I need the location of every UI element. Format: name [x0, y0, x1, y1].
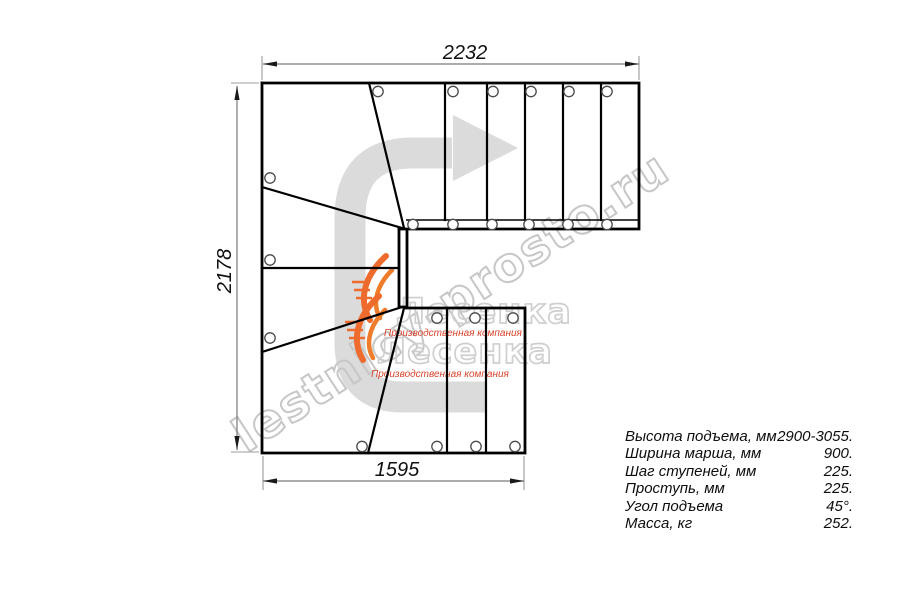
dimension-top-label: 2232: [442, 42, 488, 64]
logo-text: Лесенка: [396, 292, 572, 332]
spec-row: Масса, кг 252.: [625, 515, 853, 532]
spec-value: 252.: [824, 515, 853, 532]
spec-value: 2900-3055.: [777, 428, 853, 445]
spec-label: Проступь, мм: [625, 480, 725, 497]
spec-label: Масса, кг: [625, 515, 692, 532]
logo-text: Лесенка: [377, 332, 553, 372]
spec-row: Высота подъема, мм 2900-3055.: [625, 428, 853, 445]
spec-row: Угол подъема 45°.: [625, 498, 853, 515]
stair-drawing-page: lestnicy-prosto.ru Лесенка Производствен…: [0, 0, 900, 600]
spec-value: 225.: [824, 463, 853, 480]
spec-table: Высота подъема, мм 2900-3055. Ширина мар…: [625, 428, 853, 532]
spec-label: Угол подъема: [625, 498, 723, 515]
spec-row: Шаг ступеней, мм 225.: [625, 463, 853, 480]
spec-label: Высота подъема, мм: [625, 428, 777, 445]
spec-value: 225.: [824, 480, 853, 497]
dimension-bottom-label: 1595: [375, 459, 420, 481]
spec-row: Ширина марша, мм 900.: [625, 445, 853, 462]
spec-label: Шаг ступеней, мм: [625, 463, 756, 480]
dimension-left-label: 2178: [214, 249, 236, 295]
spec-value: 900.: [824, 445, 853, 462]
logo-tagline: Производственная компания: [371, 369, 510, 380]
spec-label: Ширина марша, мм: [625, 445, 761, 462]
spec-row: Проступь, мм 225.: [625, 480, 853, 497]
spec-value: 45°.: [826, 498, 853, 515]
